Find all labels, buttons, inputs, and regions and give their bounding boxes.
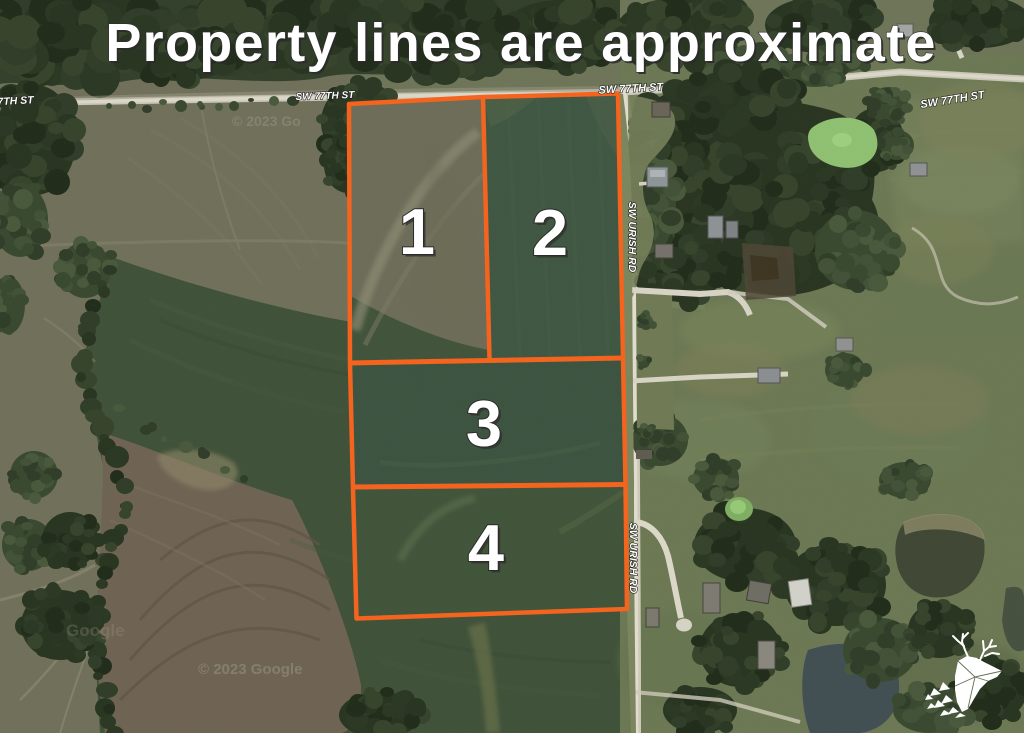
svg-text:SW 77TH ST: SW 77TH ST — [295, 90, 355, 103]
svg-text:© 2023 Go: © 2023 Go — [232, 113, 301, 129]
svg-text:2: 2 — [532, 196, 568, 269]
svg-text:Property lines are approximate: Property lines are approximate — [105, 13, 936, 73]
svg-text:4: 4 — [468, 511, 504, 584]
svg-text:SW URISH RD: SW URISH RD — [627, 523, 639, 594]
svg-text:SW URISH RD: SW URISH RD — [626, 202, 638, 273]
svg-text:Google: Google — [66, 621, 125, 640]
svg-text:© 2023 Google: © 2023 Google — [198, 661, 302, 678]
svg-text:1: 1 — [399, 195, 435, 268]
svg-text:3: 3 — [466, 387, 502, 460]
